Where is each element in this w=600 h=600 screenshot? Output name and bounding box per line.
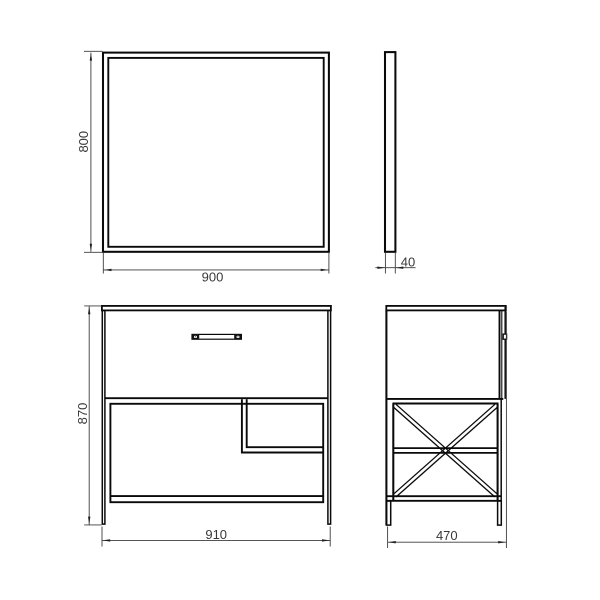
- svg-text:870: 870: [75, 403, 90, 425]
- svg-text:470: 470: [436, 528, 458, 543]
- svg-text:910: 910: [205, 527, 227, 542]
- svg-text:800: 800: [76, 131, 91, 153]
- svg-text:40: 40: [401, 254, 415, 269]
- svg-text:900: 900: [202, 270, 224, 285]
